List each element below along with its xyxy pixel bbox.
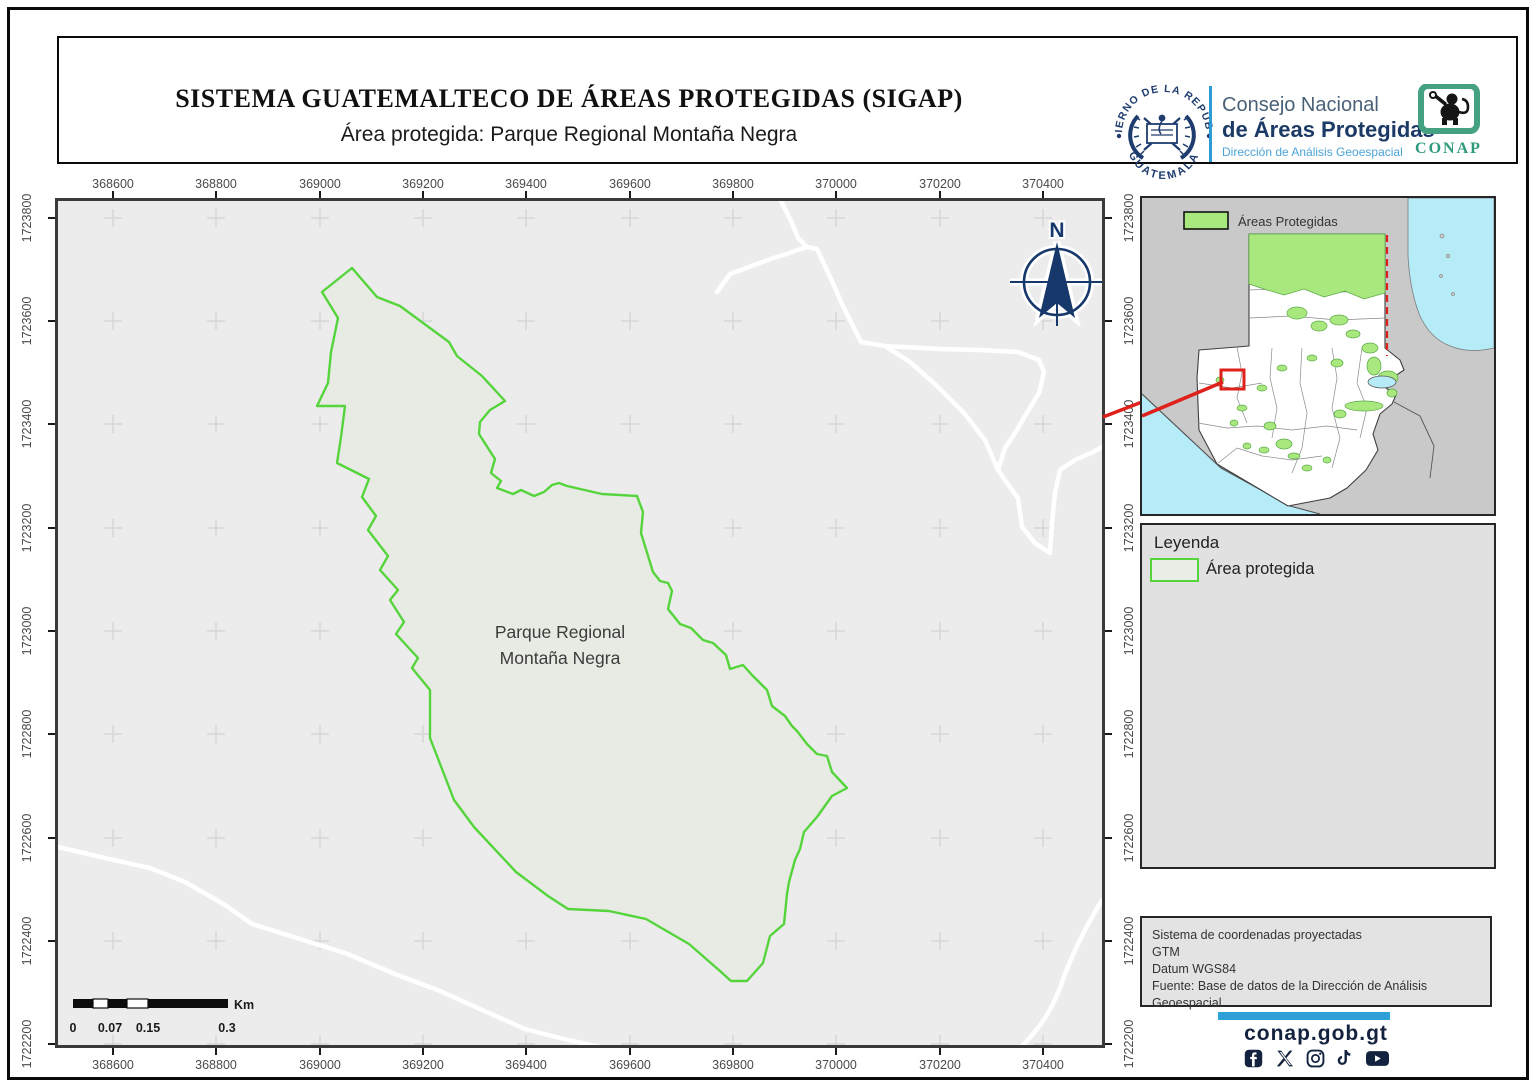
org-line3: Dirección de Análisis Geoespacial xyxy=(1222,146,1435,159)
crs-line4: Fuente: Base de datos de la Dirección de… xyxy=(1152,978,1490,1012)
legend-title: Leyenda xyxy=(1154,533,1219,553)
lake-izabal xyxy=(1368,376,1396,388)
crs-line1: Sistema de coordenadas proyectadas xyxy=(1152,927,1490,944)
youtube-icon xyxy=(1366,1049,1389,1068)
inset-legend-chip xyxy=(1184,212,1228,229)
crs-line3: Datum WGS84 xyxy=(1152,961,1490,978)
legend-item-label: Área protegida xyxy=(1206,560,1314,579)
instagram-icon xyxy=(1306,1049,1325,1068)
main-map: Parque Regional Montaña Negra N xyxy=(55,198,1105,1048)
title-block: SISTEMA GUATEMALTECO DE ÁREAS PROTEGIDAS… xyxy=(139,84,999,147)
facebook-icon xyxy=(1244,1049,1263,1068)
seal-icon: GOBIERNO DE LA REPÚBLICA GUATEMALA xyxy=(1110,78,1214,188)
government-seal-logo: GOBIERNO DE LA REPÚBLICA GUATEMALA xyxy=(1110,78,1214,193)
legend-panel: Leyenda Área protegida xyxy=(1140,523,1496,869)
social-icons-row xyxy=(1140,1049,1492,1068)
area-label-line2: Montaña Negra xyxy=(500,648,621,668)
tiktok-icon xyxy=(1337,1049,1354,1068)
org-line1: Consejo Nacional xyxy=(1222,95,1435,116)
protected-area-legend-chip xyxy=(1150,558,1199,582)
logo-divider xyxy=(1209,86,1212,162)
main-map-canvas: Parque Regional Montaña Negra N xyxy=(58,201,1102,1045)
footer-accent-bar xyxy=(1218,1012,1390,1020)
page-subtitle: Área protegida: Parque Regional Montaña … xyxy=(139,123,999,147)
locator-line xyxy=(1100,396,1142,422)
conap-logo-text: CONAP xyxy=(1411,140,1486,158)
header-box: SISTEMA GUATEMALTECO DE ÁREAS PROTEGIDAS… xyxy=(57,36,1518,164)
crs-line2: GTM xyxy=(1152,944,1490,961)
scale-label-3: 0.3 xyxy=(218,1021,235,1035)
north-label: N xyxy=(1049,219,1064,242)
seal-emblem-icon xyxy=(1144,115,1180,150)
area-label-line1: Parque Regional xyxy=(495,622,625,642)
scale-label-1: 0.07 xyxy=(98,1021,122,1035)
inset-legend-label: Áreas Protegidas xyxy=(1238,214,1338,229)
website-url: conap.gob.gt xyxy=(1140,1022,1492,1046)
inset-map-canvas: Áreas Protegidas xyxy=(1142,198,1494,514)
crs-info-panel: Sistema de coordenadas proyectadas GTM D… xyxy=(1140,916,1492,1007)
org-line2: de Áreas Protegidas xyxy=(1222,118,1435,141)
map-sheet: SISTEMA GUATEMALTECO DE ÁREAS PROTEGIDAS… xyxy=(0,0,1536,1086)
page-title: SISTEMA GUATEMALTECO DE ÁREAS PROTEGIDAS… xyxy=(139,84,999,114)
org-name-block: Consejo Nacional de Áreas Protegidas Dir… xyxy=(1222,95,1435,159)
inset-locator-map: Áreas Protegidas xyxy=(1140,196,1496,516)
x-icon xyxy=(1275,1049,1294,1068)
conap-monkey-icon xyxy=(1418,84,1480,134)
scale-label-2: 0.15 xyxy=(136,1021,160,1035)
scale-unit: Km xyxy=(234,998,254,1012)
scale-label-0: 0 xyxy=(70,1021,77,1035)
conap-logo: CONAP xyxy=(1411,84,1486,158)
